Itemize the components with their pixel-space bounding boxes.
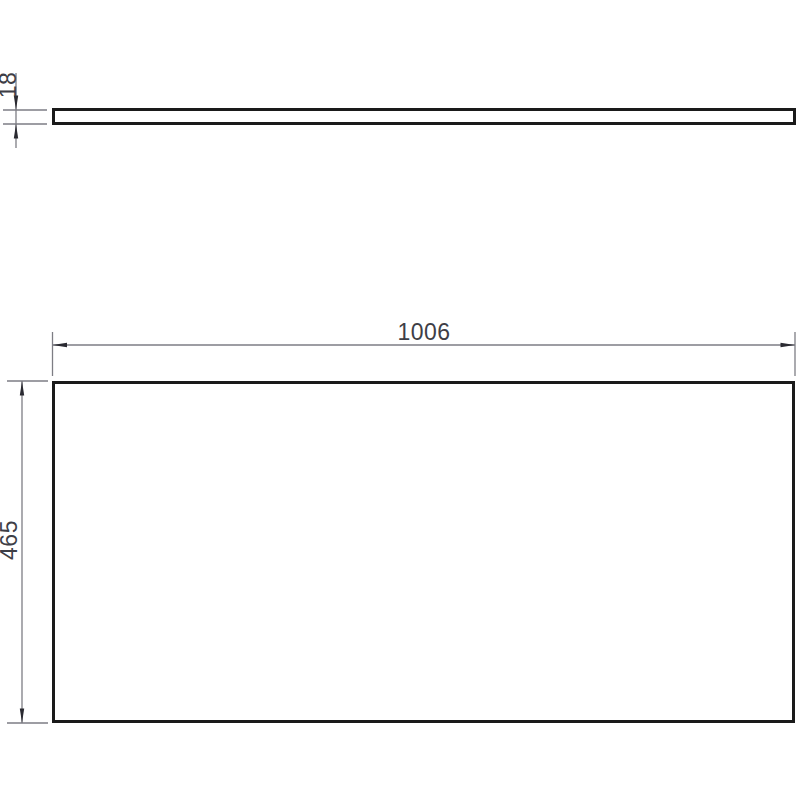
side-profile-view [54, 110, 795, 124]
front-view [54, 383, 794, 722]
thickness-dimension: 18 [0, 72, 47, 148]
arrowhead-down-icon [20, 709, 24, 724]
width-dimension: 1006 [53, 319, 796, 376]
height-dimension-label: 465 [0, 520, 22, 560]
panel-front-view-outline [54, 383, 794, 722]
technical-drawing-canvas: 18 1006 465 [0, 0, 800, 800]
panel-side-view-outline [54, 110, 795, 124]
width-dimension-label: 1006 [397, 319, 450, 345]
arrowhead-right-icon [781, 343, 796, 347]
arrowhead-up-icon [20, 381, 24, 396]
arrowhead-left-icon [53, 343, 68, 347]
technical-drawing-page: 18 1006 465 [0, 0, 800, 800]
height-dimension: 465 [0, 381, 48, 723]
arrowhead-up-icon [14, 124, 18, 139]
thickness-dimension-label: 18 [0, 72, 21, 99]
